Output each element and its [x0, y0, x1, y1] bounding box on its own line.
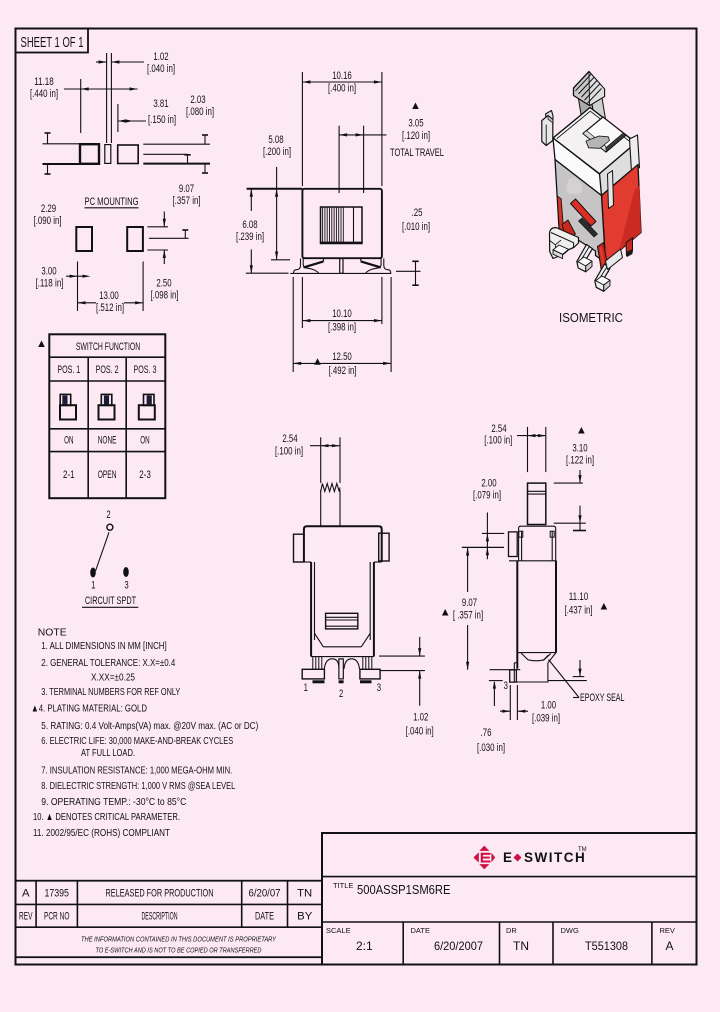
svg-text:10.16: 10.16 [332, 70, 352, 82]
svg-text:3.10: 3.10 [572, 443, 587, 455]
svg-text:9.07: 9.07 [462, 597, 477, 609]
svg-text:2.03: 2.03 [190, 94, 205, 106]
svg-text:RELEASED FOR PRODUCTION: RELEASED FOR PRODUCTION [106, 888, 214, 900]
svg-text:[.100 in]: [.100 in] [484, 435, 512, 447]
svg-text:9.07: 9.07 [179, 183, 194, 195]
svg-text:1.00: 1.00 [541, 700, 556, 712]
svg-text:[.400 in]: [.400 in] [328, 83, 356, 95]
svg-text:▲4. PLATING MATERIAL: GOLD: ▲4. PLATING MATERIAL: GOLD [31, 704, 147, 715]
svg-text:DESCRIPTION: DESCRIPTION [142, 911, 178, 923]
svg-text:TOTAL TRAVEL: TOTAL TRAVEL [390, 147, 444, 159]
svg-text:11.18: 11.18 [34, 76, 54, 88]
svg-text:TM: TM [578, 847, 587, 853]
svg-text:1.02: 1.02 [413, 712, 428, 724]
svg-text:1: 1 [304, 682, 308, 694]
svg-text:6/20/2007: 6/20/2007 [434, 939, 483, 953]
svg-text:[.040 in]: [.040 in] [406, 725, 434, 737]
svg-text:CIRCUIT SPDT: CIRCUIT SPDT [85, 595, 136, 607]
svg-text:5.08: 5.08 [268, 134, 283, 146]
svg-text:DWG: DWG [561, 926, 579, 935]
svg-text:NOTE: NOTE [38, 628, 67, 639]
svg-text:2.00: 2.00 [481, 478, 496, 490]
svg-text:2: 2 [339, 688, 343, 700]
svg-text:2: 2 [106, 509, 110, 521]
svg-text:[.118 in]: [.118 in] [35, 278, 63, 290]
svg-text:[.440 in]: [.440 in] [30, 88, 58, 100]
svg-text:REV: REV [19, 911, 33, 923]
svg-text:SWITCH: SWITCH [524, 850, 586, 865]
svg-text:POS. 2: POS. 2 [96, 364, 119, 376]
svg-text:SWITCH FUNCTION: SWITCH FUNCTION [76, 341, 140, 353]
svg-text:TO E-SWITCH AND IS NOT TO BE C: TO E-SWITCH AND IS NOT TO BE COPIED OR T… [96, 948, 262, 955]
svg-text:[.398 in]: [.398 in] [328, 322, 356, 334]
svg-text:PC MOUNTING: PC MOUNTING [85, 196, 139, 208]
svg-text:500ASSP1SM6RE: 500ASSP1SM6RE [357, 883, 451, 897]
svg-text:[.512 in]: [.512 in] [96, 302, 124, 314]
svg-text:[ .357 in]: [ .357 in] [453, 610, 483, 622]
svg-text:10. ▲ DENOTES CRITICAL PARAMET: 10. ▲ DENOTES CRITICAL PARAMETER. [33, 812, 180, 823]
svg-text:ON: ON [140, 435, 149, 447]
svg-text:X.XX=±0.25: X.XX=±0.25 [91, 673, 135, 684]
svg-text:3. TERMINAL NUMBERS FOR REF ON: 3. TERMINAL NUMBERS FOR REF ONLY [41, 687, 180, 698]
svg-text:AT FULL LOAD.: AT FULL LOAD. [81, 748, 135, 759]
svg-text:.25: .25 [412, 207, 423, 219]
svg-text:E: E [503, 850, 514, 865]
svg-text:3.81: 3.81 [153, 98, 168, 110]
svg-text:[.120 in]: [.120 in] [402, 130, 430, 142]
svg-text:THE INFORMATION CONTAINED IN T: THE INFORMATION CONTAINED IN THIS DOCUME… [81, 937, 277, 944]
svg-text:6/20/07: 6/20/07 [249, 888, 281, 900]
svg-text:PCR NO: PCR NO [44, 911, 70, 923]
svg-text:2:1: 2:1 [356, 939, 373, 953]
svg-text:2-1: 2-1 [63, 469, 75, 481]
svg-text:DATE: DATE [255, 911, 274, 923]
svg-text:[.030 in]: [.030 in] [477, 742, 505, 754]
svg-text:[.122 in]: [.122 in] [566, 455, 594, 467]
svg-text:DR: DR [506, 926, 517, 935]
svg-text:NONE: NONE [98, 435, 117, 447]
svg-text:.76: .76 [481, 727, 492, 739]
svg-text:ON: ON [64, 435, 73, 447]
svg-text:ISOMETRIC: ISOMETRIC [559, 310, 623, 325]
svg-text:POS. 1: POS. 1 [57, 364, 80, 376]
svg-text:3: 3 [377, 682, 381, 694]
svg-text:3: 3 [504, 680, 508, 692]
svg-text:[.492 in]: [.492 in] [328, 365, 356, 377]
svg-text:[.090 in]: [.090 in] [33, 215, 61, 227]
svg-text:3.05: 3.05 [408, 118, 423, 130]
svg-text:2-3: 2-3 [139, 469, 151, 481]
svg-text:TN: TN [513, 939, 529, 953]
svg-text:1: 1 [91, 580, 95, 592]
svg-text:T551308: T551308 [585, 939, 628, 953]
svg-text:POS. 3: POS. 3 [134, 364, 157, 376]
svg-text:[.357 in]: [.357 in] [172, 195, 200, 207]
svg-text:[.040 in]: [.040 in] [147, 63, 175, 75]
svg-text:12.50: 12.50 [332, 351, 352, 363]
svg-text:2.54: 2.54 [491, 423, 506, 435]
svg-text:[.079 in]: [.079 in] [473, 490, 501, 502]
svg-text:8. DIELECTRIC STRENGTH: 1,000: 8. DIELECTRIC STRENGTH: 1,000 V RMS @SEA… [41, 781, 235, 792]
svg-text:6. ELECTRIC LIFE: 30,000 MAKE-: 6. ELECTRIC LIFE: 30,000 MAKE-AND-BREAK … [41, 736, 233, 747]
svg-text:[.039 in]: [.039 in] [532, 713, 560, 725]
svg-text:[.080 in]: [.080 in] [186, 106, 214, 118]
svg-text:TITLE: TITLE [333, 881, 353, 890]
svg-text:7. INSULATION RESISTANCE: 1,00: 7. INSULATION RESISTANCE: 1,000 MEGA-OHM… [41, 765, 232, 776]
svg-text:[.200 in]: [.200 in] [263, 146, 291, 158]
svg-text:[.150 in]: [.150 in] [148, 114, 176, 126]
svg-text:3.00: 3.00 [41, 266, 56, 278]
svg-text:[.100 in]: [.100 in] [275, 446, 303, 458]
svg-text:11. 2002/95/EC (ROHS) COMPLIAN: 11. 2002/95/EC (ROHS) COMPLIANT [33, 828, 171, 839]
svg-text:TN: TN [297, 888, 312, 900]
svg-text:17395: 17395 [44, 888, 69, 900]
svg-text:[.239 in]: [.239 in] [236, 231, 264, 243]
svg-text:11.10: 11.10 [569, 591, 589, 603]
svg-text:2.29: 2.29 [41, 203, 56, 215]
svg-text:13.00: 13.00 [99, 290, 119, 302]
svg-text:REV: REV [660, 926, 675, 935]
svg-text:SHEET 1 OF 1: SHEET 1 OF 1 [21, 34, 84, 51]
svg-text:2. GENERAL TOLERANCE: X.X=±0.4: 2. GENERAL TOLERANCE: X.X=±0.4 [41, 658, 175, 669]
svg-text:BY: BY [297, 911, 313, 923]
svg-text:A: A [22, 888, 30, 900]
svg-text:1.02: 1.02 [153, 51, 168, 63]
svg-text:OPEN: OPEN [98, 469, 117, 481]
svg-text:10.10: 10.10 [332, 308, 352, 320]
svg-text:SCALE: SCALE [326, 926, 351, 935]
svg-text:2.54: 2.54 [282, 433, 297, 445]
svg-text:6.08: 6.08 [242, 219, 257, 231]
svg-text:5. RATING: 0.4 Volt-Amps(VA) m: 5. RATING: 0.4 Volt-Amps(VA) max. @20V m… [41, 721, 258, 732]
svg-text:1. ALL DIMENSIONS IN MM [INCH]: 1. ALL DIMENSIONS IN MM [INCH] [41, 641, 166, 652]
svg-text:[.437 in]: [.437 in] [564, 605, 592, 617]
svg-text:[.010 in]: [.010 in] [402, 221, 430, 233]
svg-text:DATE: DATE [411, 926, 430, 935]
svg-text:[.098 in]: [.098 in] [150, 290, 178, 302]
svg-text:EPOXY SEAL: EPOXY SEAL [580, 692, 625, 704]
svg-text:9. OPERATING TEMP.: -30°C to 8: 9. OPERATING TEMP.: -30°C to 85°C [41, 797, 186, 808]
svg-text:A: A [666, 939, 674, 953]
svg-text:2.50: 2.50 [156, 278, 171, 290]
svg-text:3: 3 [124, 580, 128, 592]
